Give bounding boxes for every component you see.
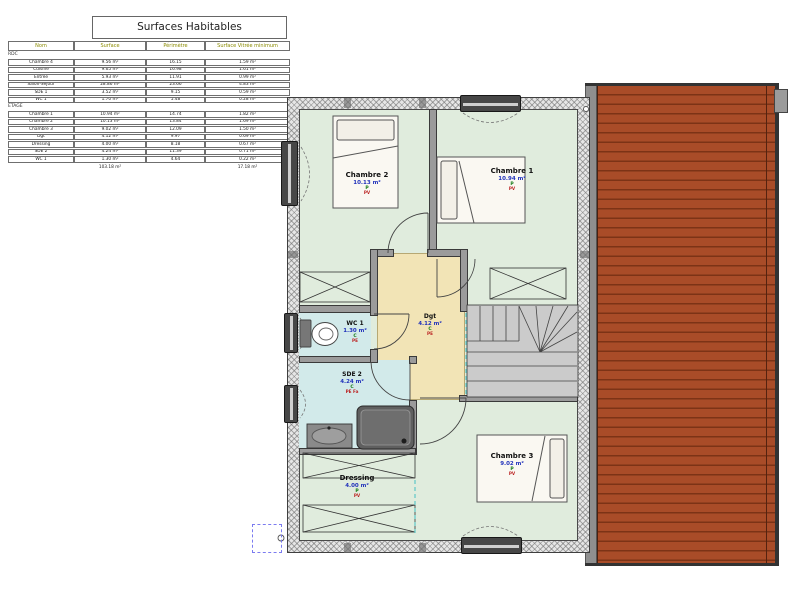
window-glass-line	[464, 545, 519, 548]
table-cell: Cuisine	[8, 67, 74, 74]
wall-hallway-left-upper	[370, 249, 378, 316]
table-total-row: 103.18 m² 17.18 m²	[8, 164, 290, 171]
table-cell: Entrée	[8, 74, 74, 81]
window-bottom	[461, 537, 522, 554]
table-cell: 0.22 m²	[205, 156, 290, 163]
table-cell: 0.71 m²	[205, 149, 290, 156]
table-body: RDCChambre 49.56 m²16.151.59 m²Cuisine9.…	[8, 52, 290, 163]
table-cell: 4.12 m²	[74, 134, 146, 141]
table-cell: Dressing	[8, 141, 74, 148]
roof-tiles	[597, 86, 775, 563]
section-label: RDC	[8, 52, 290, 58]
table-row: WC 11.70 m²5.480.28 m²	[8, 97, 290, 104]
table-cell: 16.98	[146, 67, 205, 74]
wall-bedroom-divider	[429, 109, 437, 255]
window-glass-line	[290, 316, 293, 350]
table-cell: 16.15	[146, 59, 205, 66]
table-row: Chambre 49.56 m²16.151.59 m²	[8, 59, 290, 66]
table-cell: 23.66	[146, 82, 205, 89]
wall-wc-sde-divider	[299, 356, 371, 363]
total-surface: 103.18 m²	[74, 164, 146, 171]
table-row: Dgt4.12 m²9.970.69 m²	[8, 134, 290, 141]
table-cell: Salon-Séjour	[8, 82, 74, 89]
table-grid: Nom Surface Périmètre Surface Vitrée min…	[8, 40, 290, 171]
column-header-vitree: Surface Vitrée minimum	[205, 41, 290, 51]
table-cell: 0.28 m²	[205, 97, 290, 104]
roof-tab	[774, 89, 788, 113]
window-left-sde	[284, 385, 298, 423]
wall-stairs-bottom	[459, 395, 578, 402]
table-cell: 14.74	[146, 111, 205, 118]
roof-area	[585, 83, 779, 566]
table-row: SDE 24.24 m²11.390.71 m²	[8, 149, 290, 156]
window-left-wc	[284, 313, 298, 353]
window-glass-line	[463, 103, 518, 106]
table-cell: Dgt	[8, 134, 74, 141]
wall-sde-right-upper	[409, 356, 417, 364]
wall-hallway-right	[460, 249, 468, 312]
table-cell: 4.83 m²	[205, 82, 290, 89]
table-cell: 5.93 m²	[74, 74, 146, 81]
table-header-row: Nom Surface Périmètre Surface Vitrée min…	[8, 41, 290, 51]
table-cell: 0.67 m²	[205, 141, 290, 148]
table-cell: 3.52 m²	[74, 89, 146, 96]
table-cell: Chambre 2	[8, 119, 74, 126]
table-cell: 9.65 m²	[74, 67, 146, 74]
table-row: Entrée5.93 m²11.910.99 m²	[8, 74, 290, 81]
table-cell: 9.15	[146, 89, 205, 96]
column-header-perimetre: Périmètre	[146, 41, 205, 51]
table-cell: 1.59 m²	[205, 59, 290, 66]
table-cell: 0.99 m²	[205, 74, 290, 81]
table-cell: 1.69 m²	[205, 119, 290, 126]
total-empty	[146, 164, 205, 171]
table-cell: 1.30 m²	[74, 156, 146, 163]
table-cell: 4.00 m²	[74, 141, 146, 148]
table-cell: 1.70 m²	[74, 97, 146, 104]
window-top	[460, 95, 521, 112]
table-cell: 4.64	[146, 156, 205, 163]
cad-drawing-canvas: Surfaces Habitables Nom Surface Périmètr…	[0, 0, 800, 597]
table-cell: 28.86 m²	[74, 82, 146, 89]
table-cell: WC 1	[8, 156, 74, 163]
table-row: Cuisine9.65 m²16.981.61 m²	[8, 67, 290, 74]
table-cell: 9.02 m²	[74, 126, 146, 133]
table-cell: 13.84	[146, 119, 205, 126]
selection-handle-square[interactable]	[252, 524, 282, 553]
table-row: Chambre 110.94 m²14.741.82 m²	[8, 111, 290, 118]
table-cell: SDE 2	[8, 149, 74, 156]
wall-dressing-top	[299, 448, 416, 455]
table-row: WC 11.30 m²4.640.22 m²	[8, 156, 290, 163]
table-cell: WC 1	[8, 97, 74, 104]
table-cell: 11.91	[146, 74, 205, 81]
window-glass-line	[288, 144, 291, 203]
table-cell: Chambre 3	[8, 126, 74, 133]
table-row: Dressing4.00 m²8.180.67 m²	[8, 141, 290, 148]
table-row: Chambre 210.13 m²13.841.69 m²	[8, 119, 290, 126]
table-cell: 0.59 m²	[205, 89, 290, 96]
section-label: ETAGE	[8, 104, 290, 110]
total-surface-vitree: 17.18 m²	[205, 164, 290, 171]
wall-hallway-left-lower	[370, 349, 378, 363]
table-title: Surfaces Habitables	[92, 16, 287, 39]
window-left-bedroom2	[281, 141, 298, 206]
floor-shower-room	[299, 360, 410, 450]
table-cell: 1.82 m²	[205, 111, 290, 118]
table-cell: 9.56 m²	[74, 59, 146, 66]
table-cell: SDE 1	[8, 89, 74, 96]
table-cell: 5.48	[146, 97, 205, 104]
window-glass-line	[290, 388, 293, 420]
wall-sde-right-lower	[409, 400, 417, 455]
table-cell: 1.61 m²	[205, 67, 290, 74]
table-row: Salon-Séjour28.86 m²23.664.83 m²	[8, 82, 290, 89]
table-cell: 10.94 m²	[74, 111, 146, 118]
floor-wc	[299, 312, 371, 358]
table-cell: 0.69 m²	[205, 134, 290, 141]
table-cell: 9.97	[146, 134, 205, 141]
table-cell: 4.24 m²	[74, 149, 146, 156]
table-row: SDE 13.52 m²9.150.59 m²	[8, 89, 290, 96]
table-row: Chambre 39.02 m²12.091.50 m²	[8, 126, 290, 133]
table-cell: 1.50 m²	[205, 126, 290, 133]
total-empty	[8, 164, 74, 171]
column-header-surface: Surface	[74, 41, 146, 51]
table-cell: 12.09	[146, 126, 205, 133]
table-cell: Chambre 1	[8, 111, 74, 118]
table-cell: Chambre 4	[8, 59, 74, 66]
roof-edge-line	[766, 86, 768, 563]
column-header-nom: Nom	[8, 41, 74, 51]
table-cell: 11.39	[146, 149, 205, 156]
table-cell: 8.18	[146, 141, 205, 148]
table-cell: 10.13 m²	[74, 119, 146, 126]
wall-wc-top	[299, 305, 371, 313]
